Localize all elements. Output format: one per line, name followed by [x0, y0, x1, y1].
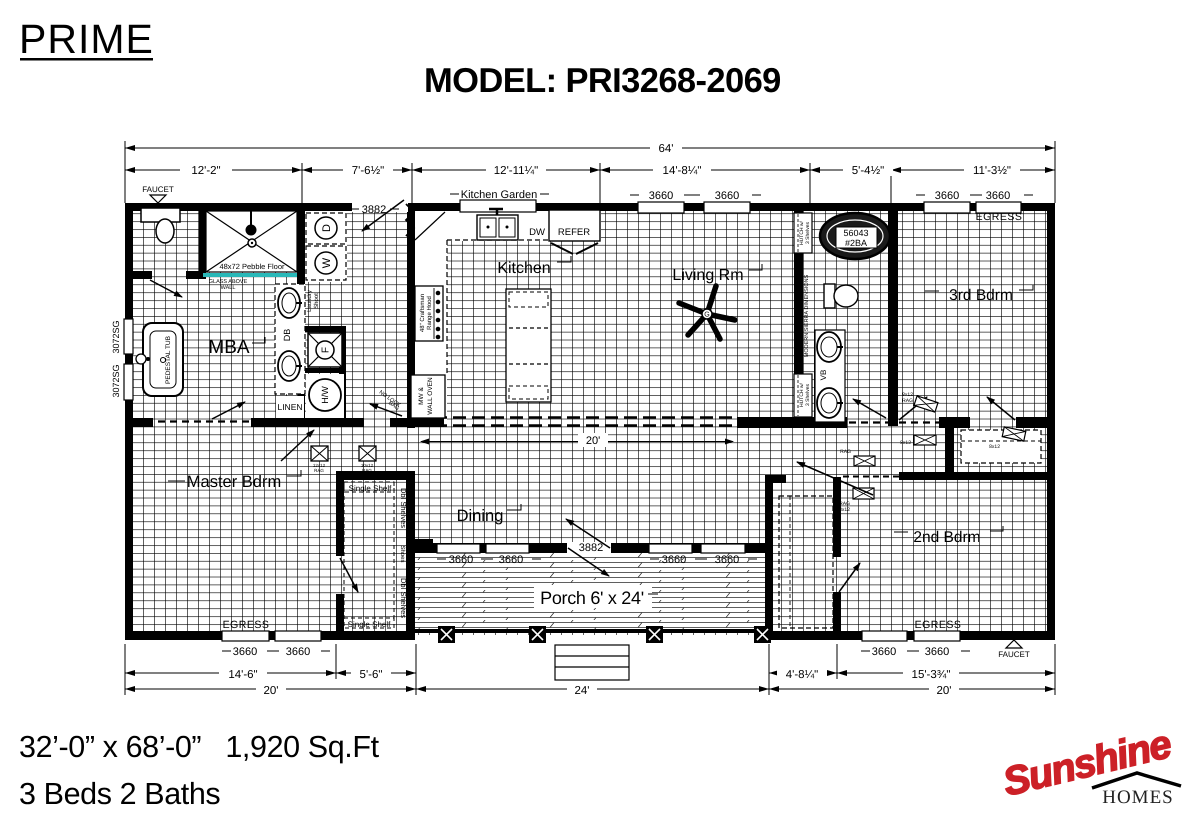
svg-text:MW &: MW &	[418, 386, 425, 404]
svg-text:3 Shelves: 3 Shelves	[805, 384, 811, 406]
svg-text:Living Rm: Living Rm	[672, 267, 743, 284]
svg-text:3660: 3660	[872, 646, 896, 658]
svg-text:MODERN SIERRA DIMENSIONS: MODERN SIERRA DIMENSIONS	[804, 274, 810, 357]
svg-text:3 Beds 2 Baths: 3 Beds 2 Baths	[19, 777, 220, 811]
svg-text:H/W: H/W	[320, 386, 330, 404]
svg-text:32’-0” x 68’-0” 1,920 Sq.Ft: 32’-0” x 68’-0” 1,920 Sq.Ft	[19, 730, 380, 764]
svg-text:HOMES: HOMES	[1102, 787, 1174, 808]
svg-text:Single Shelf: Single Shelf	[348, 620, 391, 629]
svg-text:3660: 3660	[499, 554, 523, 566]
svg-text:WALL: WALL	[221, 285, 236, 291]
svg-text:Kitchen: Kitchen	[497, 260, 550, 277]
svg-text:3882: 3882	[579, 542, 603, 554]
svg-text:W: W	[321, 257, 333, 268]
svg-text:3660: 3660	[649, 190, 673, 202]
svg-text:#2BA: #2BA	[845, 238, 867, 248]
svg-text:RAG: RAG	[362, 468, 372, 473]
svg-text:15'-3¾": 15'-3¾"	[912, 669, 951, 681]
svg-text:PEDESTAL TUB: PEDESTAL TUB	[165, 336, 172, 384]
svg-text:3882: 3882	[362, 204, 386, 216]
svg-text:11'-3½": 11'-3½"	[973, 165, 1011, 177]
svg-text:48x72 Pebble Floor: 48x72 Pebble Floor	[219, 262, 285, 271]
svg-text:3 Shelves: 3 Shelves	[805, 222, 811, 244]
svg-text:64': 64'	[659, 143, 674, 155]
svg-text:3660: 3660	[715, 554, 739, 566]
svg-text:D: D	[321, 224, 333, 232]
svg-text:DB: DB	[282, 329, 292, 342]
svg-text:F: F	[321, 347, 332, 353]
svg-text:4'-8¼": 4'-8¼"	[786, 669, 819, 681]
svg-text:PRIME: PRIME	[19, 16, 154, 62]
svg-text:MBA: MBA	[208, 337, 250, 358]
svg-text:Shoot: Shoot	[313, 293, 320, 309]
svg-text:3660: 3660	[986, 190, 1010, 202]
svg-text:3660: 3660	[662, 554, 686, 566]
svg-text:EGRESS: EGRESS	[976, 211, 1023, 223]
svg-text:48" Craftsman: 48" Craftsman	[419, 294, 426, 332]
svg-text:3660: 3660	[715, 190, 739, 202]
svg-text:WALL OVEN: WALL OVEN	[427, 377, 434, 415]
svg-text:8x12: 8x12	[839, 507, 850, 513]
svg-text:Laundry: Laundry	[306, 290, 313, 312]
svg-text:LINEN: LINEN	[277, 402, 302, 412]
svg-text:3660: 3660	[925, 646, 949, 658]
svg-text:8x12: 8x12	[989, 444, 1000, 450]
svg-text:20': 20'	[937, 685, 952, 697]
svg-text:DW: DW	[529, 227, 545, 238]
svg-text:3660: 3660	[286, 646, 310, 658]
svg-text:RAG: RAG	[314, 468, 324, 473]
svg-text:Range Hood: Range Hood	[426, 296, 433, 330]
svg-text:EGRESS: EGRESS	[915, 619, 962, 631]
svg-text:5'-6": 5'-6"	[360, 669, 383, 681]
svg-text:Porch 6' x 24': Porch 6' x 24'	[540, 588, 644, 608]
svg-text:20': 20'	[586, 435, 600, 447]
svg-text:3660: 3660	[233, 646, 257, 658]
svg-text:12'-2": 12'-2"	[191, 165, 220, 177]
svg-text:Master Bdrm: Master Bdrm	[187, 473, 281, 491]
svg-text:3660: 3660	[935, 190, 959, 202]
svg-text:24': 24'	[575, 685, 590, 697]
svg-text:14'-6": 14'-6"	[228, 669, 257, 681]
svg-text:3072SG: 3072SG	[111, 364, 121, 397]
svg-text:MODEL: PRI3268-2069: MODEL: PRI3268-2069	[424, 62, 781, 100]
svg-text:Dbl Shelves: Dbl Shelves	[399, 488, 408, 528]
svg-text:2nd Bdrm: 2nd Bdrm	[913, 529, 980, 546]
svg-text:3rd Bdrm: 3rd Bdrm	[949, 287, 1013, 304]
svg-text:RAG: RAG	[902, 398, 913, 404]
svg-text:RAG: RAG	[840, 449, 851, 455]
svg-text:3660: 3660	[449, 554, 473, 566]
svg-text:VB: VB	[819, 370, 828, 381]
svg-text:G: G	[704, 312, 709, 319]
svg-text:8x12: 8x12	[900, 440, 911, 446]
svg-text:14'-8¼": 14'-8¼"	[663, 165, 702, 177]
svg-text:7'-6½": 7'-6½"	[352, 165, 385, 177]
svg-text:EGRESS: EGRESS	[223, 619, 270, 631]
svg-text:Single Shelf: Single Shelf	[349, 484, 392, 493]
svg-text:REFER: REFER	[558, 227, 590, 238]
svg-text:5'-4½": 5'-4½"	[852, 165, 885, 177]
svg-text:FAUCET: FAUCET	[998, 650, 1030, 659]
svg-text:Kitchen Garden: Kitchen Garden	[461, 189, 537, 201]
svg-text:12'-11¼": 12'-11¼"	[494, 165, 538, 177]
svg-text:3072SG: 3072SG	[111, 320, 121, 353]
svg-text:FAUCET: FAUCET	[142, 185, 174, 194]
svg-text:20': 20'	[264, 685, 279, 697]
svg-text:Dbl Shelves: Dbl Shelves	[399, 578, 408, 618]
svg-text:Shoes: Shoes	[399, 545, 406, 562]
svg-text:Dining: Dining	[457, 507, 504, 525]
svg-text:56043: 56043	[843, 228, 868, 238]
